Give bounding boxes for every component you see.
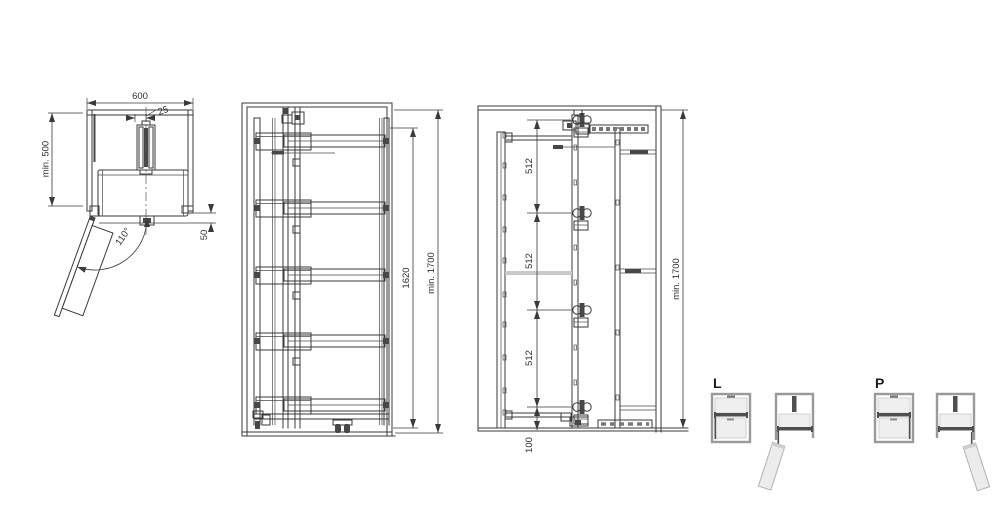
dim-frame-height: 1620 bbox=[390, 128, 418, 428]
technical-drawing-canvas: 600 25 bbox=[0, 0, 1000, 524]
dim-depth-label: min. 500 bbox=[41, 141, 52, 177]
dim-hinge-chain: 512 512 512 100 bbox=[524, 120, 571, 453]
dim-hinge-spacing-1: 512 bbox=[524, 158, 535, 174]
dim-width-label: 600 bbox=[132, 91, 148, 102]
door-panel-side bbox=[497, 132, 506, 428]
shelf-level-1 bbox=[254, 133, 390, 155]
shelf-level-2 bbox=[254, 200, 390, 217]
bottom-rail-front bbox=[253, 411, 389, 433]
variant-right-closed-icon bbox=[875, 394, 913, 442]
variant-left-closed-icon bbox=[712, 394, 750, 442]
frame-rail-side bbox=[505, 115, 578, 428]
dim-rail-offset-label: 25 bbox=[157, 104, 170, 118]
dim-frame-height-label: 1620 bbox=[401, 267, 412, 288]
variant-left-label: L bbox=[713, 375, 722, 391]
variant-left-open-icon bbox=[758, 394, 813, 490]
shelf-level-5 bbox=[254, 397, 390, 414]
dim-cabinet-height-side: min. 1700 bbox=[661, 110, 688, 428]
shelf-level-4 bbox=[254, 333, 390, 350]
hinge-icon-3 bbox=[573, 303, 591, 327]
dim-front-50: 50 bbox=[99, 204, 216, 240]
cabinet-outline-side bbox=[478, 106, 688, 432]
dim-hinge-spacing-3: 512 bbox=[524, 350, 535, 366]
dim-rail-offset-25: 25 bbox=[126, 104, 170, 122]
pullout-frame-front bbox=[254, 108, 389, 428]
variant-right-label: P bbox=[875, 375, 884, 391]
open-door bbox=[54, 216, 115, 324]
door-variant-legend: L P bbox=[705, 372, 1000, 512]
dim-width-600: 600 bbox=[87, 91, 193, 109]
front-view-drawing: 1620 min. 1700 bbox=[238, 95, 453, 457]
shelf-level-3 bbox=[254, 267, 390, 284]
top-view-drawing: 600 25 bbox=[35, 88, 240, 340]
hinge-icon-2 bbox=[573, 206, 591, 230]
pullout-frame-side bbox=[553, 128, 656, 428]
dim-depth-min500: min. 500 bbox=[41, 113, 84, 206]
top-slide-mechanism bbox=[563, 110, 648, 134]
dim-bottom-offset-label: 100 bbox=[524, 437, 535, 453]
side-view-drawing: 512 512 512 100 min. 1700 bbox=[475, 95, 710, 467]
cabinet-carcass-top bbox=[87, 110, 193, 216]
mid-shelf bbox=[505, 271, 572, 275]
basket-top-view bbox=[98, 170, 188, 216]
dim-door-angle-label: 110° bbox=[113, 226, 133, 248]
dim-hinge-spacing-2: 512 bbox=[524, 253, 535, 269]
variant-right-open-icon bbox=[937, 394, 990, 491]
dim-cabinet-height-label: min. 1700 bbox=[426, 252, 437, 294]
dim-front-gap-label: 50 bbox=[199, 230, 210, 241]
dim-cabinet-height-side-label: min. 1700 bbox=[671, 258, 682, 300]
